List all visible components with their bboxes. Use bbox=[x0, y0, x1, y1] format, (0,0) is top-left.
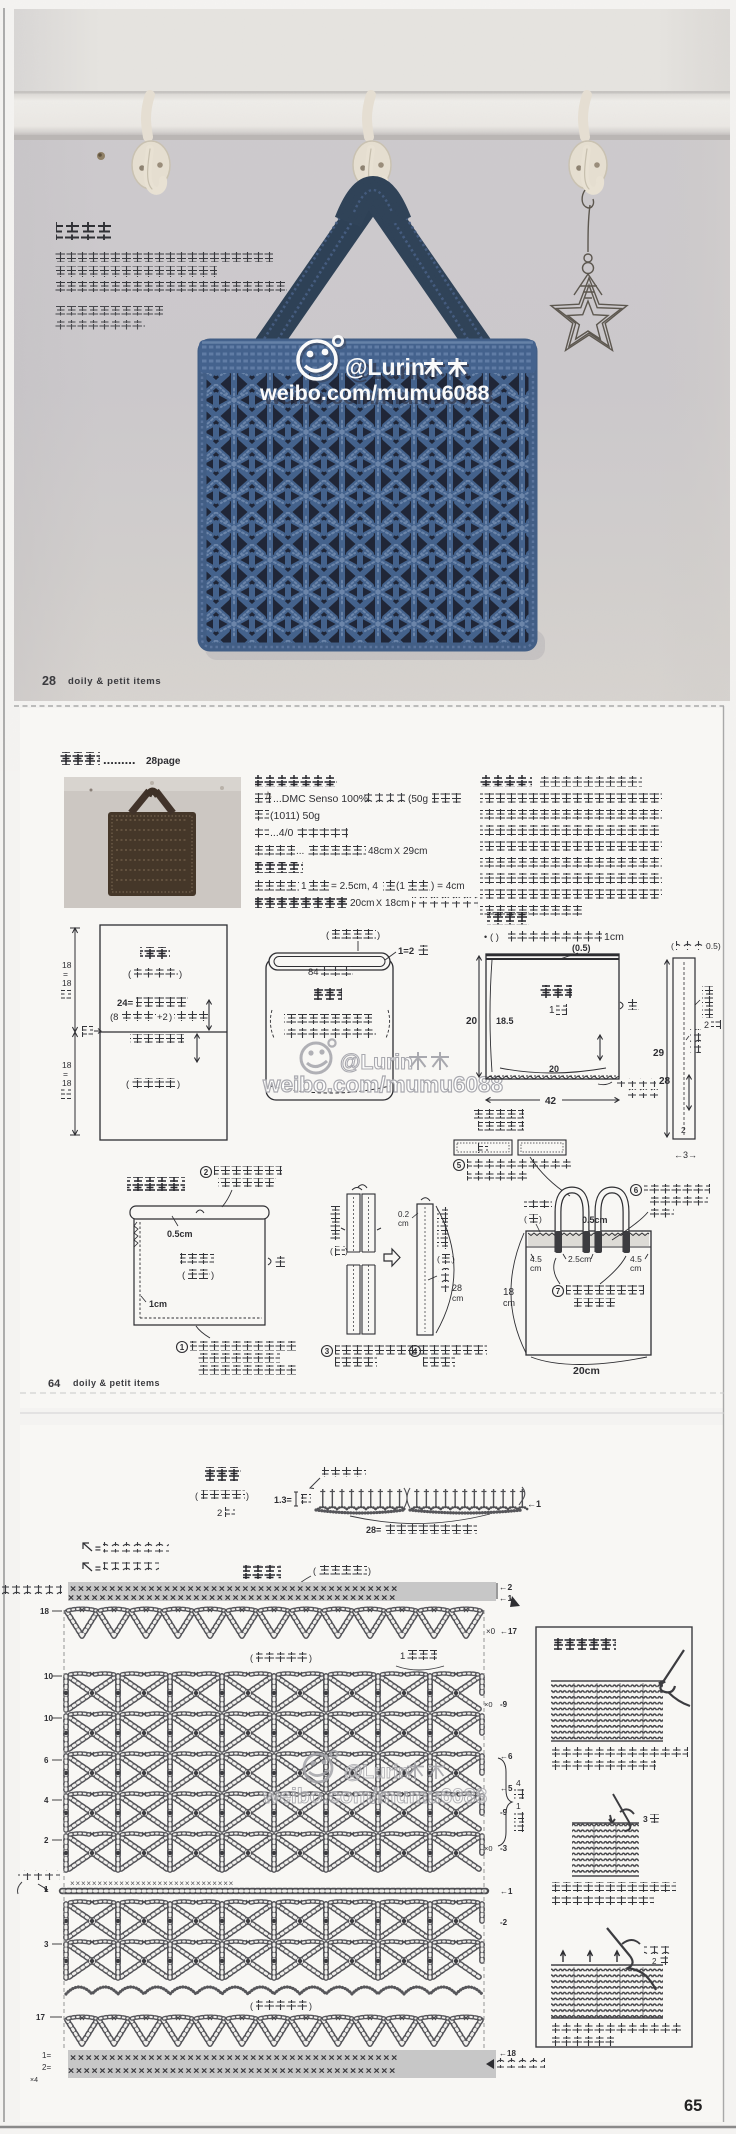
svg-text:2: 2 bbox=[217, 1508, 222, 1519]
svg-text:(1011) 50g: (1011) 50g bbox=[270, 810, 320, 822]
svg-text:1=2: 1=2 bbox=[398, 946, 414, 957]
svg-text:): ) bbox=[169, 1012, 172, 1023]
svg-text:...DMC Senso 100%: ...DMC Senso 100% bbox=[273, 793, 368, 805]
svg-text:doily & petit items: doily & petit items bbox=[73, 1378, 160, 1388]
svg-text:@Lurin: @Lurin bbox=[340, 1051, 413, 1074]
svg-text:28: 28 bbox=[659, 1076, 671, 1087]
svg-text:18: 18 bbox=[62, 978, 72, 988]
svg-text:2.5cm: 2.5cm bbox=[568, 1254, 591, 1264]
svg-text:×0: ×0 bbox=[484, 1844, 493, 1853]
svg-text:): ) bbox=[177, 1079, 180, 1090]
svg-text:0.5cm: 0.5cm bbox=[167, 1229, 193, 1239]
svg-text:4: 4 bbox=[413, 1347, 418, 1356]
svg-text:1.3=: 1.3= bbox=[274, 1495, 292, 1505]
svg-text:3: 3 bbox=[325, 1347, 330, 1356]
svg-text:18: 18 bbox=[62, 1078, 72, 1088]
svg-text:××××××××××××××××××××××××××××××: ××××××××××××××××××××××××××××××××××××××××… bbox=[68, 1592, 397, 1604]
svg-text:42: 42 bbox=[545, 1096, 557, 1107]
svg-text:weibo.com/mumu6088: weibo.com/mumu6088 bbox=[262, 1785, 487, 1808]
svg-text:): ) bbox=[309, 1653, 312, 1663]
svg-text:= 2.5cm, 4: = 2.5cm, 4 bbox=[331, 881, 378, 892]
svg-text:18: 18 bbox=[503, 1287, 515, 1298]
svg-text:...: ... bbox=[296, 846, 304, 857]
svg-text:...4/0: ...4/0 bbox=[270, 827, 294, 839]
svg-text:←2: ←2 bbox=[499, 1582, 513, 1592]
svg-text:(: ( bbox=[250, 2001, 253, 2011]
svg-text:0.2: 0.2 bbox=[398, 1210, 410, 1219]
svg-text:2: 2 bbox=[704, 1020, 709, 1030]
svg-text:weibo.com/mumu6088: weibo.com/mumu6088 bbox=[262, 1072, 503, 1097]
svg-text:84: 84 bbox=[308, 967, 319, 978]
svg-text:(: ( bbox=[671, 941, 674, 951]
svg-text:): ) bbox=[179, 969, 182, 980]
svg-text:): ) bbox=[377, 930, 380, 941]
svg-text:(1: (1 bbox=[396, 881, 405, 892]
svg-text:X: X bbox=[376, 898, 382, 908]
svg-text:×0: ×0 bbox=[486, 1627, 496, 1636]
svg-text:-9: -9 bbox=[500, 1700, 508, 1709]
svg-text:48cm: 48cm bbox=[368, 846, 392, 857]
svg-text:1: 1 bbox=[301, 881, 307, 892]
svg-text:28page: 28page bbox=[146, 756, 181, 767]
svg-text:×4: ×4 bbox=[30, 2077, 38, 2084]
svg-text:): ) bbox=[345, 1246, 348, 1256]
svg-text:←3→: ←3→ bbox=[674, 1150, 697, 1160]
svg-text:1=: 1= bbox=[42, 2051, 51, 2060]
svg-text:cm: cm bbox=[452, 1293, 463, 1303]
svg-text:): ) bbox=[211, 1270, 214, 1281]
svg-text:cm: cm bbox=[630, 1263, 641, 1273]
svg-text:(0.5): (0.5) bbox=[572, 943, 591, 953]
svg-text:6: 6 bbox=[634, 1186, 639, 1195]
svg-text:(8: (8 bbox=[110, 1012, 118, 1023]
svg-text:1cm: 1cm bbox=[149, 1299, 167, 1309]
svg-text:××××××××××××××××××××××××××××××: ××××××××××××××××××××××××××××××××××××××××… bbox=[68, 2065, 397, 2077]
svg-text:18cm: 18cm bbox=[385, 898, 409, 909]
svg-text:←18: ←18 bbox=[499, 2049, 516, 2058]
svg-text:4: 4 bbox=[44, 1796, 49, 1805]
svg-text:2: 2 bbox=[204, 1168, 209, 1177]
svg-text:2: 2 bbox=[44, 1836, 49, 1845]
svg-text:cm: cm bbox=[503, 1298, 515, 1308]
svg-text:10: 10 bbox=[44, 1714, 53, 1723]
svg-text:X: X bbox=[394, 846, 400, 856]
svg-text:1: 1 bbox=[516, 1801, 521, 1811]
svg-text:3: 3 bbox=[643, 1814, 648, 1824]
svg-text:-2: -2 bbox=[500, 1918, 508, 1927]
svg-text:29cm: 29cm bbox=[403, 846, 427, 857]
svg-text:2: 2 bbox=[652, 1957, 657, 1966]
svg-text:) = 4cm: ) = 4cm bbox=[431, 881, 465, 892]
svg-text:(50g: (50g bbox=[408, 794, 428, 805]
svg-text:): ) bbox=[246, 1491, 249, 1501]
svg-text:(: ( bbox=[250, 1653, 253, 1663]
svg-text:=: = bbox=[95, 1564, 101, 1575]
svg-text:6: 6 bbox=[44, 1756, 49, 1765]
svg-text:): ) bbox=[368, 1566, 371, 1576]
svg-text:-3: -3 bbox=[500, 1844, 508, 1853]
svg-text:1: 1 bbox=[180, 1343, 185, 1352]
svg-text:28=: 28= bbox=[366, 1525, 381, 1535]
svg-text:7: 7 bbox=[556, 1287, 561, 1296]
svg-text:20: 20 bbox=[466, 1016, 478, 1027]
svg-text:28: 28 bbox=[452, 1283, 462, 1293]
svg-text:18.5: 18.5 bbox=[496, 1016, 514, 1026]
svg-text:2: 2 bbox=[681, 1125, 686, 1135]
svg-text:20cm: 20cm bbox=[573, 1365, 600, 1377]
svg-text:(: ( bbox=[330, 1246, 333, 1256]
svg-text:0.5cm: 0.5cm bbox=[582, 1215, 608, 1225]
svg-text:•: • bbox=[484, 932, 487, 942]
svg-text:65: 65 bbox=[684, 2097, 702, 2115]
svg-text:): ) bbox=[309, 2001, 312, 2011]
svg-text:1: 1 bbox=[549, 1005, 555, 1016]
svg-text:←1: ←1 bbox=[527, 1499, 541, 1509]
svg-text:(: ( bbox=[437, 1254, 440, 1264]
svg-text:64: 64 bbox=[48, 1378, 61, 1390]
svg-text:0.5): 0.5) bbox=[706, 941, 721, 951]
svg-text:cm: cm bbox=[530, 1263, 541, 1273]
svg-text:28: 28 bbox=[42, 674, 56, 688]
svg-text:4: 4 bbox=[516, 1778, 521, 1788]
svg-text:(: ( bbox=[195, 1491, 198, 1501]
svg-text:+2: +2 bbox=[157, 1012, 168, 1023]
svg-text:←17: ←17 bbox=[500, 1627, 517, 1636]
svg-text:3: 3 bbox=[44, 1940, 49, 1949]
svg-text:.........: ......... bbox=[103, 752, 136, 767]
svg-text:5: 5 bbox=[457, 1161, 462, 1170]
svg-text:cm: cm bbox=[398, 1219, 409, 1228]
svg-text:=: = bbox=[95, 1544, 101, 1555]
svg-text:×0: ×0 bbox=[484, 1700, 493, 1709]
svg-text:20cm: 20cm bbox=[350, 898, 374, 909]
svg-text:29: 29 bbox=[653, 1048, 665, 1059]
svg-text:(: ( bbox=[524, 1214, 527, 1224]
svg-text:××××××××××××××××××××××××××××××: ×××××××××××××××××××××××××××××× bbox=[70, 1879, 234, 1888]
svg-text:(: ( bbox=[313, 1566, 316, 1576]
svg-text:( ): ( ) bbox=[490, 932, 499, 943]
svg-text:1: 1 bbox=[400, 1651, 405, 1662]
svg-text:××××××××××××××××××××××××××××××: ××××××××××××××××××××××××××××××××××××××××… bbox=[70, 2052, 399, 2064]
svg-text:2=: 2= bbox=[42, 2063, 51, 2072]
svg-text:18: 18 bbox=[40, 1607, 49, 1616]
svg-text:24=: 24= bbox=[117, 998, 134, 1009]
svg-text:10: 10 bbox=[44, 1672, 53, 1681]
svg-text:1cm: 1cm bbox=[604, 931, 624, 943]
svg-text:17: 17 bbox=[36, 2013, 45, 2022]
svg-text:): ) bbox=[539, 1214, 542, 1224]
svg-text:@Lurin: @Lurin bbox=[344, 1762, 410, 1783]
svg-text:doily & petit items: doily & petit items bbox=[68, 676, 161, 687]
svg-text:←1: ←1 bbox=[500, 1887, 513, 1896]
